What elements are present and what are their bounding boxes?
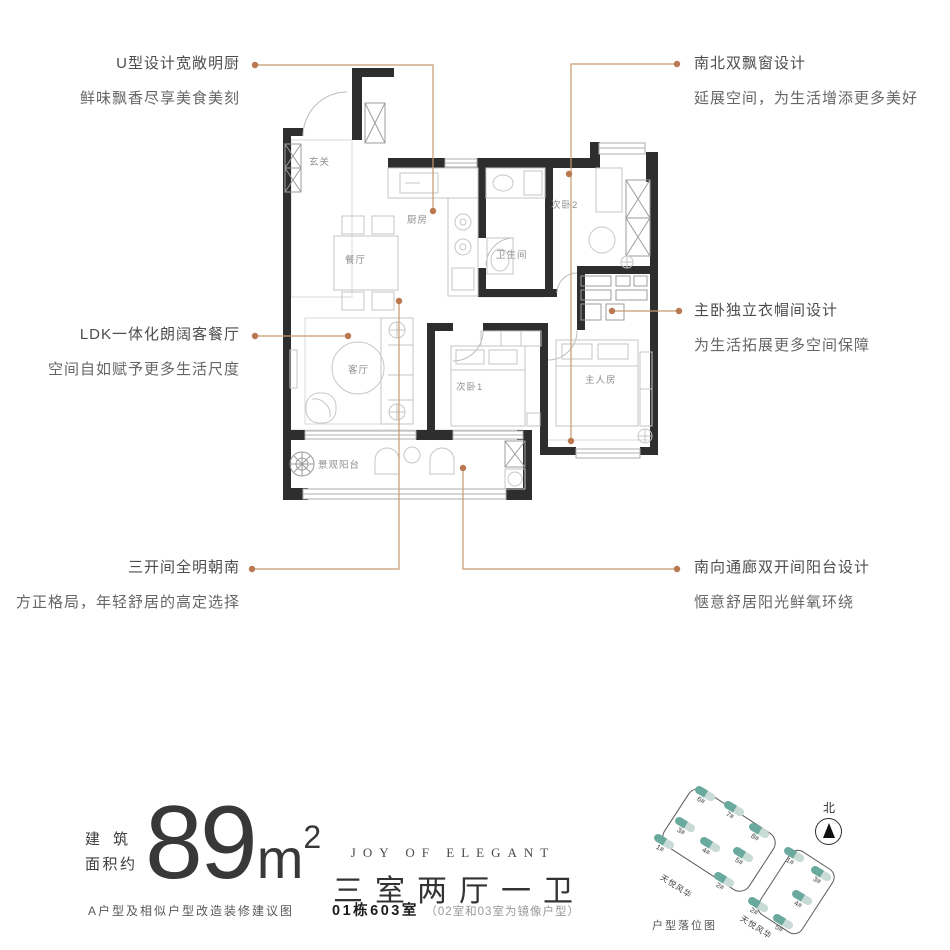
north-arrow-icon [823,823,835,838]
slogan-en: JOY OF ELEGANT [330,845,576,861]
windows [303,143,645,499]
north-label: 北 [815,799,843,816]
area-label-line2: 面积约 [85,853,138,874]
balcony-railing [303,489,506,499]
kitchen-window [445,159,477,167]
callout-kitchen-subtitle: 鲜味飘香尽享美食美刻 [80,91,240,107]
callout-ldk-title: LDK一体化朗阔客餐厅 [48,327,240,343]
callout-balcony-subtitle: 惬意舒居阳光鲜氧环绕 [694,595,870,611]
callout-cloakroom-subtitle: 为生活拓展更多空间保障 [694,338,870,354]
floorplan-poster: U型设计宽敞明厨 鲜味飘香尽享美食美刻 南北双飘窗设计 延展空间，为生活增添更多… [0,0,950,950]
room-label-entry: 玄关 [309,154,330,168]
area-label-line1: 建筑 [85,828,148,849]
north-bay-window [599,143,645,154]
callout-ldk: LDK一体化朗阔客餐厅 空间自如赋予更多生活尺度 [48,327,240,378]
callout-south-rooms-subtitle: 方正格局，年轻舒居的高定选择 [16,595,240,611]
area-label: 建筑 面积约 [85,828,135,874]
callout-kitchen-title: U型设计宽敞明厨 [80,56,240,72]
callout-balcony: 南向通廊双开间阳台设计 惬意舒居阳光鲜氧环绕 [694,560,870,611]
unit-number-value: 01栋603室 [332,903,419,919]
callout-bay-windows-title: 南北双飘窗设计 [694,56,918,72]
leader-balcony [463,468,677,569]
door-arcs [303,92,577,361]
room-label-bedroom2: 次卧2 [551,197,578,211]
room-label-kitchen: 厨房 [407,212,428,226]
south-bay-window [576,449,640,458]
entry-cabinet [285,103,385,192]
bedroom2-furniture [589,168,650,268]
room-label-bathroom: 卫生间 [496,247,528,261]
leader-kitchen [255,65,433,211]
callout-cloakroom-title: 主卧独立衣帽间设计 [694,303,870,319]
unit-note: （02室和03室为镜像户型） [425,906,580,918]
area-unit: m [257,836,304,882]
area-block: 建筑 面积约 89 m 2 [85,804,321,882]
room-label-balcony: 景观阳台 [318,457,360,471]
area-exponent: 2 [303,822,321,852]
callout-bay-windows-subtitle: 延展空间，为生活增添更多美好 [694,91,918,107]
room-label-master: 主人房 [585,372,617,386]
disclaimer-text: A户型及相似户型改造装修建议图 [88,902,294,919]
callout-south-rooms-title: 三开间全明朝南 [16,560,240,576]
callout-cloakroom: 主卧独立衣帽间设计 为生活拓展更多空间保障 [694,303,870,354]
room-label-dining: 餐厅 [345,252,366,266]
washer [505,441,525,467]
room-label-living: 客厅 [348,362,369,376]
callout-kitchen: U型设计宽敞明厨 鲜味飘香尽享美食美刻 [80,56,240,107]
compass-icon [815,818,842,845]
siteplan-caption: 户型落位图 [652,917,717,933]
north-indicator: 北 [815,799,843,845]
plant [290,452,314,476]
area-value: 89 [145,804,255,882]
unit-number: 01栋603室 （02室和03室为镜像户型） [332,899,580,920]
callout-south-rooms: 三开间全明朝南 方正格局，年轻舒居的高定选择 [16,560,240,611]
room-label-bedroom1: 次卧1 [456,379,483,393]
bedroom1-window [453,431,523,439]
callout-bay-windows: 南北双飘窗设计 延展空间，为生活增添更多美好 [694,56,918,107]
callout-balcony-title: 南向通廊双开间阳台设计 [694,560,870,576]
callout-ldk-subtitle: 空间自如赋予更多生活尺度 [48,362,240,378]
